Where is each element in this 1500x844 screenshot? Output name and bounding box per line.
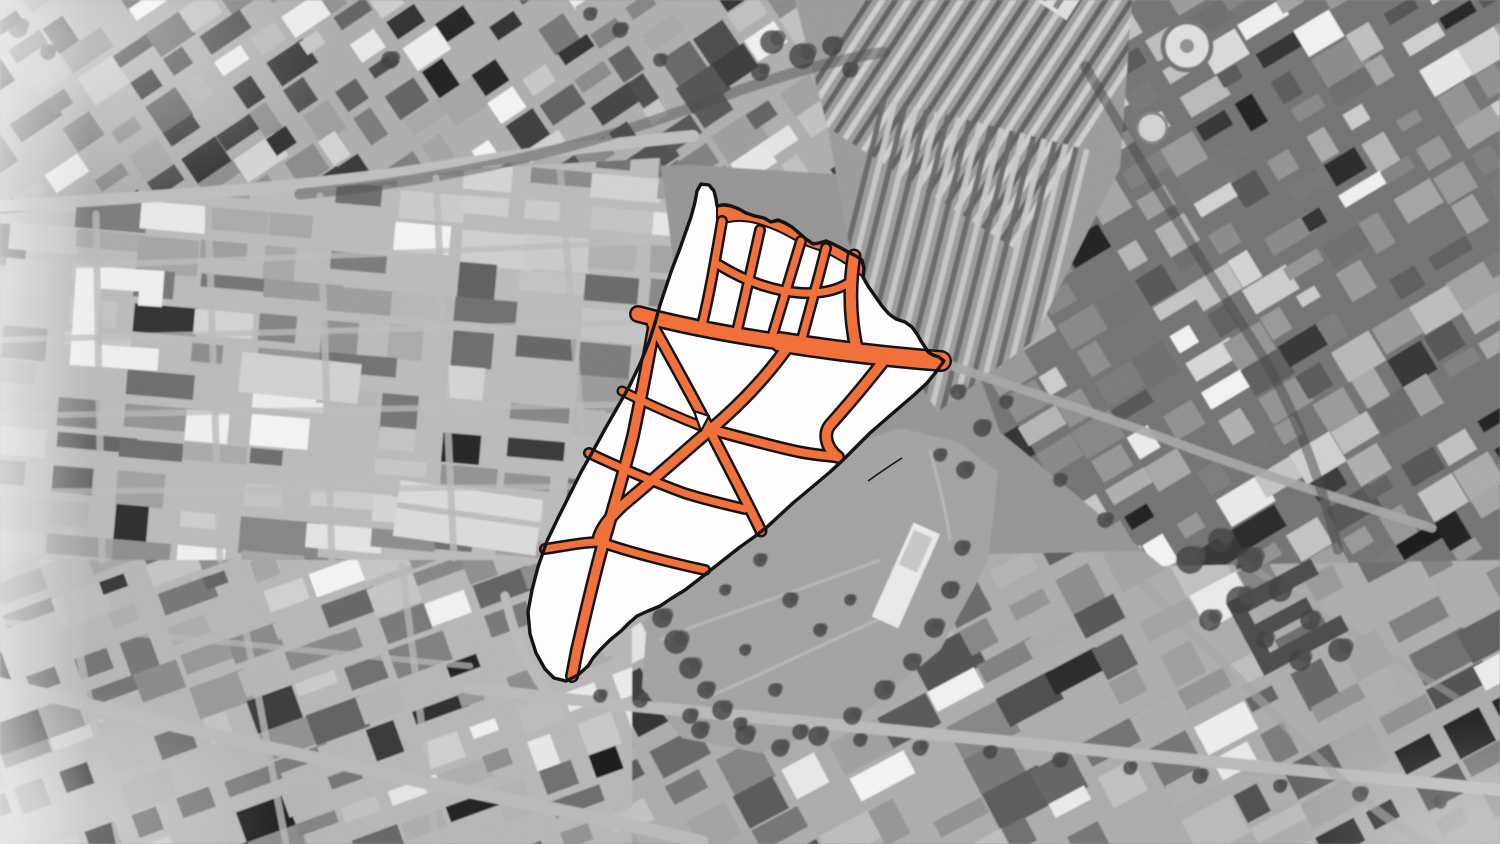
aerial-map-scene (0, 0, 1500, 844)
scene-canvas (0, 0, 1500, 844)
